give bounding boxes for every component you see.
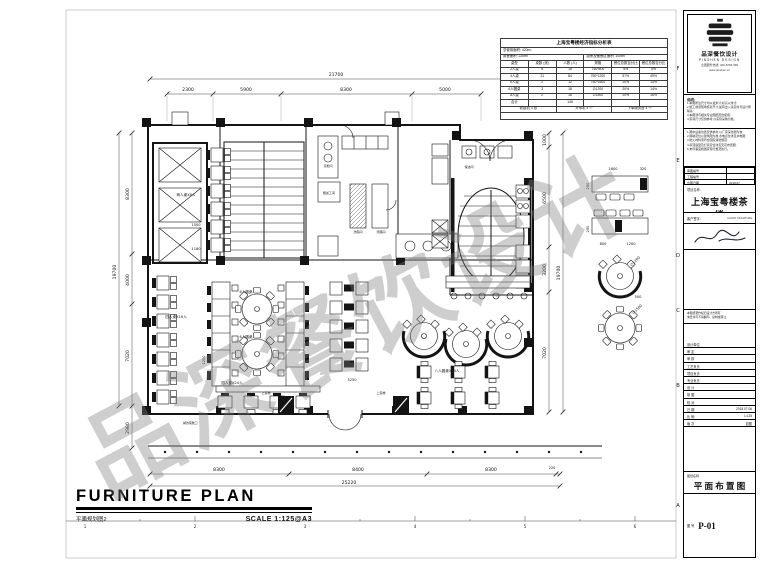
legend-dia-1500: ∅1500 (632, 303, 644, 315)
field-label: 设 计 (687, 385, 694, 389)
ref-num-6: 6 (634, 524, 637, 529)
field-label: 审 定 (687, 349, 694, 353)
dim-bottom-3: 8300 (485, 467, 497, 473)
dim-bottom-1: 8300 (213, 467, 225, 473)
label-dish-room: 洗碗间 (353, 229, 362, 234)
label-four-person-2: 四人桌X24人 (221, 380, 243, 385)
field-row: 日 期2018.07.06 (684, 406, 755, 413)
field-row: 设 计 (684, 384, 755, 391)
drawing-scale: SCALE 1:125@A3 (246, 516, 312, 523)
table-row (501, 113, 668, 120)
drawing-name: 平 面 布 置 图 (687, 480, 752, 492)
copyright-block: 本图纸著作权归设计方所有 未经许可不得翻印、复制或转让 (684, 310, 755, 324)
title-block: 品深餐饮设计 PINSHEN DESIGN 全国服务热线: 400-8766-3… (683, 10, 756, 558)
company-tel: 全国服务热线: 400-8766-399 (701, 63, 738, 67)
company-section: 品深餐饮设计 PINSHEN DESIGN 全国服务热线: 400-8766-3… (684, 11, 755, 95)
field-row: 校 对 (684, 399, 755, 406)
field-label: 项目负责 (687, 371, 700, 375)
drawing-title-footer: FURNITURE PLAN 平面规划图2 SCALE 1:125@A3 (76, 487, 312, 523)
client-label: 客户签字: (687, 216, 701, 221)
dim-bottom-overall: 25220 (342, 480, 357, 486)
blank-box (684, 250, 755, 310)
project-name: 上海宝粤楼茶楼 (687, 195, 752, 213)
field-row: 审 定 (684, 348, 755, 355)
ref-letter-f: F (677, 66, 680, 72)
dim-inner-1: 1500 (191, 223, 201, 227)
company-name: 品深餐饮设计 (701, 50, 738, 58)
round-tables-6p (236, 288, 279, 376)
dim-top-1: 2300 (182, 87, 194, 93)
copyright-line: 未经许可不得翻印、复制或转让 (687, 316, 752, 320)
legend-dim-250a: 250 (586, 182, 590, 190)
fields-table: 设计单位 审 定 审 核 工艺负责 项目负责 专业负责 设 计 制 图 校 对 … (684, 341, 755, 427)
economic-indicator-table: 上海宝粤楼经济指标分析表 总使用面积: 420m² 用餐面积: 220m² 厨房… (500, 38, 668, 120)
dim-top-2: 5900 (240, 87, 252, 93)
bar-counter (446, 276, 530, 299)
label-roast-room: 烧腊间 (376, 229, 385, 234)
ref-letter-e: E (676, 158, 679, 164)
field-row: 项目负责 (684, 370, 755, 377)
project-section: 项目名称: 上海宝粤楼茶楼 (684, 185, 755, 213)
legend-dim-320: 320 (640, 167, 648, 171)
field-value: 如图 (746, 421, 752, 425)
dim-top-3: 8300 (340, 87, 352, 93)
ref-letter-c: C (676, 308, 680, 314)
legend-dia-1200: ∅1200 (630, 255, 642, 267)
company-web: www.pinshen.cn (709, 68, 730, 72)
drawing-no-label: 图 号 (687, 523, 694, 528)
drawing-title: FURNITURE PLAN (76, 487, 312, 510)
legend-dim-800: 800 (600, 242, 608, 246)
ref-letter-a: A (676, 503, 680, 509)
drawing-name-section: 图纸名称 平 面 布 置 图 (684, 472, 755, 494)
ref-num-3: 3 (304, 524, 307, 529)
signature-box (684, 224, 755, 250)
legend-dim-250b: 250 (586, 225, 590, 233)
dim-left-1: 8300 (125, 188, 131, 200)
mini-table: 审图编号 工程编号 出图日期2018.07 (684, 167, 755, 185)
dim-top-4: 5000 (439, 87, 451, 93)
empty-cell (501, 113, 668, 120)
label-clean-room: 保洁间 (464, 164, 473, 169)
dim-right-1: 1000 (542, 134, 548, 146)
notes-block-1: 说明: 1.本图所注尺寸均以毫米计,标高以米计; 2.施工前须现场核对尺寸,如有… (684, 95, 755, 129)
dim-left-2: 4000 (125, 274, 131, 286)
dim-right-2: 6500 (542, 192, 548, 204)
field-row: 审 核 (684, 355, 755, 362)
round-booth-tables (403, 315, 529, 365)
field-label: 审 核 (687, 356, 694, 360)
ref-num-1: 1 (84, 524, 87, 529)
client-signature (691, 226, 749, 248)
dining-mid-columns (330, 282, 368, 371)
field-label: 日 期 (687, 407, 694, 411)
ref-num-4: 4 (414, 524, 417, 529)
legend-dim-1200: 1200 (626, 242, 636, 246)
drawing-no: P-01 (698, 521, 716, 531)
dim-left-overall: 19700 (112, 265, 118, 280)
field-label: 专业负责 (687, 378, 700, 382)
client-label-en: CLIENT SIGNATURE (727, 217, 752, 220)
label-two-person: 两人桌X8人 (176, 192, 196, 197)
field-row: 设计单位 (684, 341, 755, 348)
label-round6-a: 6人圆桌 (239, 289, 252, 294)
field-label: 工艺负责 (687, 364, 700, 368)
dim-top-overall: 21700 (329, 72, 344, 78)
field-row: 版 次如图 (684, 420, 755, 427)
notes-block-2: 1.图中设备位置仅供参考,以厂家深化图为准; 2.隔墙定位以建筑图为准,水电点位… (684, 129, 755, 167)
drawing-name-label: 图纸名称 (687, 474, 752, 478)
dim-right-3: 3200 (542, 264, 548, 276)
drawing-title-cn: 平面规划图2 (76, 515, 107, 523)
elevator-block (153, 143, 207, 263)
label-round8: 八人圆桌X24人 (434, 368, 459, 373)
field-row: 比 例1:125 (684, 413, 755, 420)
label-four-person: 四人桌X16人 (165, 314, 187, 319)
drawing-number-section: 图 号 P-01 (684, 494, 755, 557)
mini-table-section: 审图编号 工程编号 出图日期2018.07 (684, 167, 755, 185)
label-fire-exit: 消防疏散口 (182, 420, 197, 425)
legend-dim-500: 500 (635, 295, 643, 299)
field-row: 工艺负责 (684, 363, 755, 370)
label-lift-2: 上菜梯 (376, 390, 385, 395)
main-staircase (206, 142, 304, 258)
drawing-sheet: 21700 2300 5900 8300 5000 19700 8300 400… (0, 0, 760, 568)
client-signature-row: 客户签字: CLIENT SIGNATURE (684, 213, 755, 224)
table-row: 上海宝粤楼经济指标分析表 (501, 39, 668, 48)
company-logo-box: 品深餐饮设计 PINSHEN DESIGN 全国服务热线: 400-8766-3… (687, 14, 752, 93)
field-label: 校 对 (687, 400, 694, 404)
dim-right-overall: 19700 (556, 266, 562, 281)
spacer (684, 324, 755, 341)
label-prep-room: 粗加工间 (323, 190, 335, 195)
dining-two-person-row (152, 276, 177, 404)
company-name-en: PINSHEN DESIGN (699, 58, 740, 62)
equipment-strip (516, 185, 530, 288)
entrance-and-walkway (148, 409, 602, 458)
project-label: 项目名称: (687, 187, 752, 192)
dim-inner-3: 1200 (202, 355, 206, 365)
dim-bottom-4: 220 (549, 466, 557, 470)
table-title: 上海宝粤楼经济指标分析表 (501, 39, 668, 48)
field-value: 1:125 (744, 414, 752, 418)
label-lift-1: 上菜梯 (261, 390, 270, 395)
ref-num-2: 2 (194, 524, 197, 529)
note-line: 5.未尽事宜按国家现行规范执行。 (687, 148, 752, 152)
furniture-legend: 1600 320 250 800 1200 250 ∅1200 500 ∅150… (586, 167, 648, 350)
field-row: 制 图 (684, 391, 755, 398)
label-round6-b: 6人圆桌 (239, 334, 252, 339)
spacer (684, 427, 755, 472)
field-value: 2018.07.06 (736, 407, 752, 411)
dim-inner-2: 1180 (191, 247, 201, 251)
ref-num-5: 5 (524, 524, 527, 529)
dim-left-4: 2980 (125, 422, 131, 434)
dim-inner-4: 3250 (347, 378, 357, 382)
label-steam-room: 蒸柜间 (323, 163, 332, 168)
dim-left-3: 7020 (125, 350, 131, 362)
legend-dim-1600: 1600 (608, 167, 618, 171)
ref-letter-d: D (676, 253, 680, 259)
field-label: 版 次 (687, 421, 694, 425)
field-label: 制 图 (687, 392, 694, 396)
dim-right-4: 7020 (542, 347, 548, 359)
company-logo-icon (703, 18, 737, 48)
ref-letter-b: B (676, 383, 680, 389)
field-label: 比 例 (687, 414, 694, 418)
field-label: 设计单位 (687, 342, 700, 346)
note-line: 4.家具尺寸仅供参考,以实际采购为准。 (687, 118, 752, 122)
field-row: 专业负责 (684, 377, 755, 384)
dim-bottom-2: 8400 (352, 467, 364, 473)
